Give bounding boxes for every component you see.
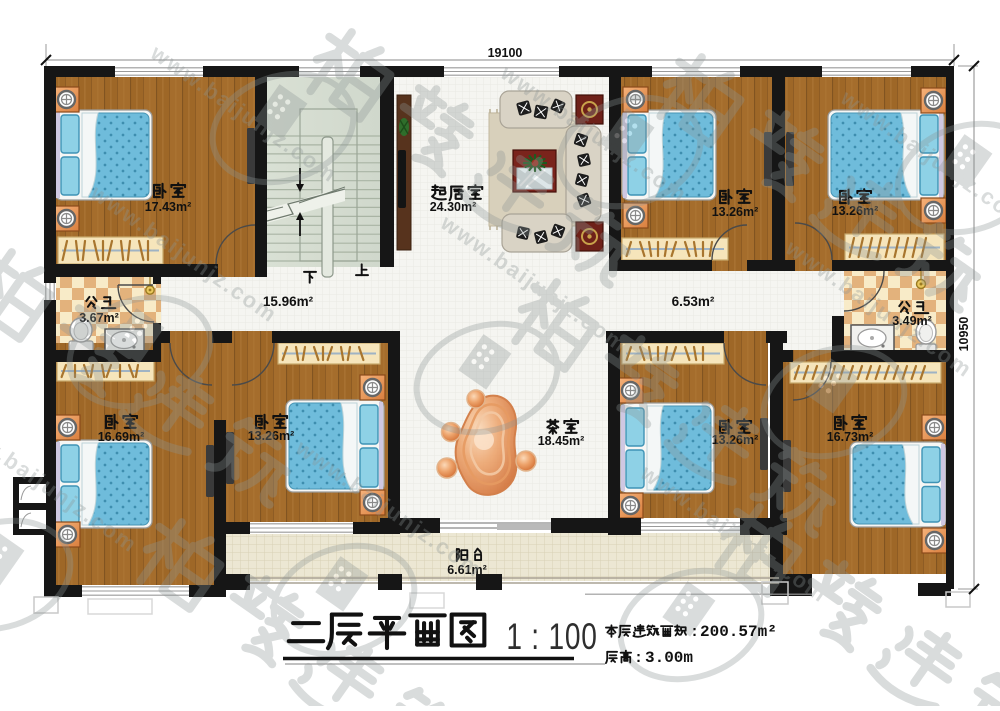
svg-text:17.43m²: 17.43m²: [145, 200, 192, 214]
svg-text:200.57m²: 200.57m²: [700, 623, 777, 641]
svg-text::: :: [690, 624, 699, 641]
svg-text:10950: 10950: [957, 317, 971, 352]
svg-text:1 : 100: 1 : 100: [506, 615, 597, 657]
svg-text:18.45m²: 18.45m²: [538, 434, 585, 448]
svg-text:13.26m²: 13.26m²: [712, 205, 759, 219]
svg-text:6.53m²: 6.53m²: [672, 294, 715, 309]
svg-text:19100: 19100: [488, 46, 523, 60]
svg-text:3.00m: 3.00m: [645, 649, 693, 667]
svg-text::: :: [634, 650, 643, 667]
